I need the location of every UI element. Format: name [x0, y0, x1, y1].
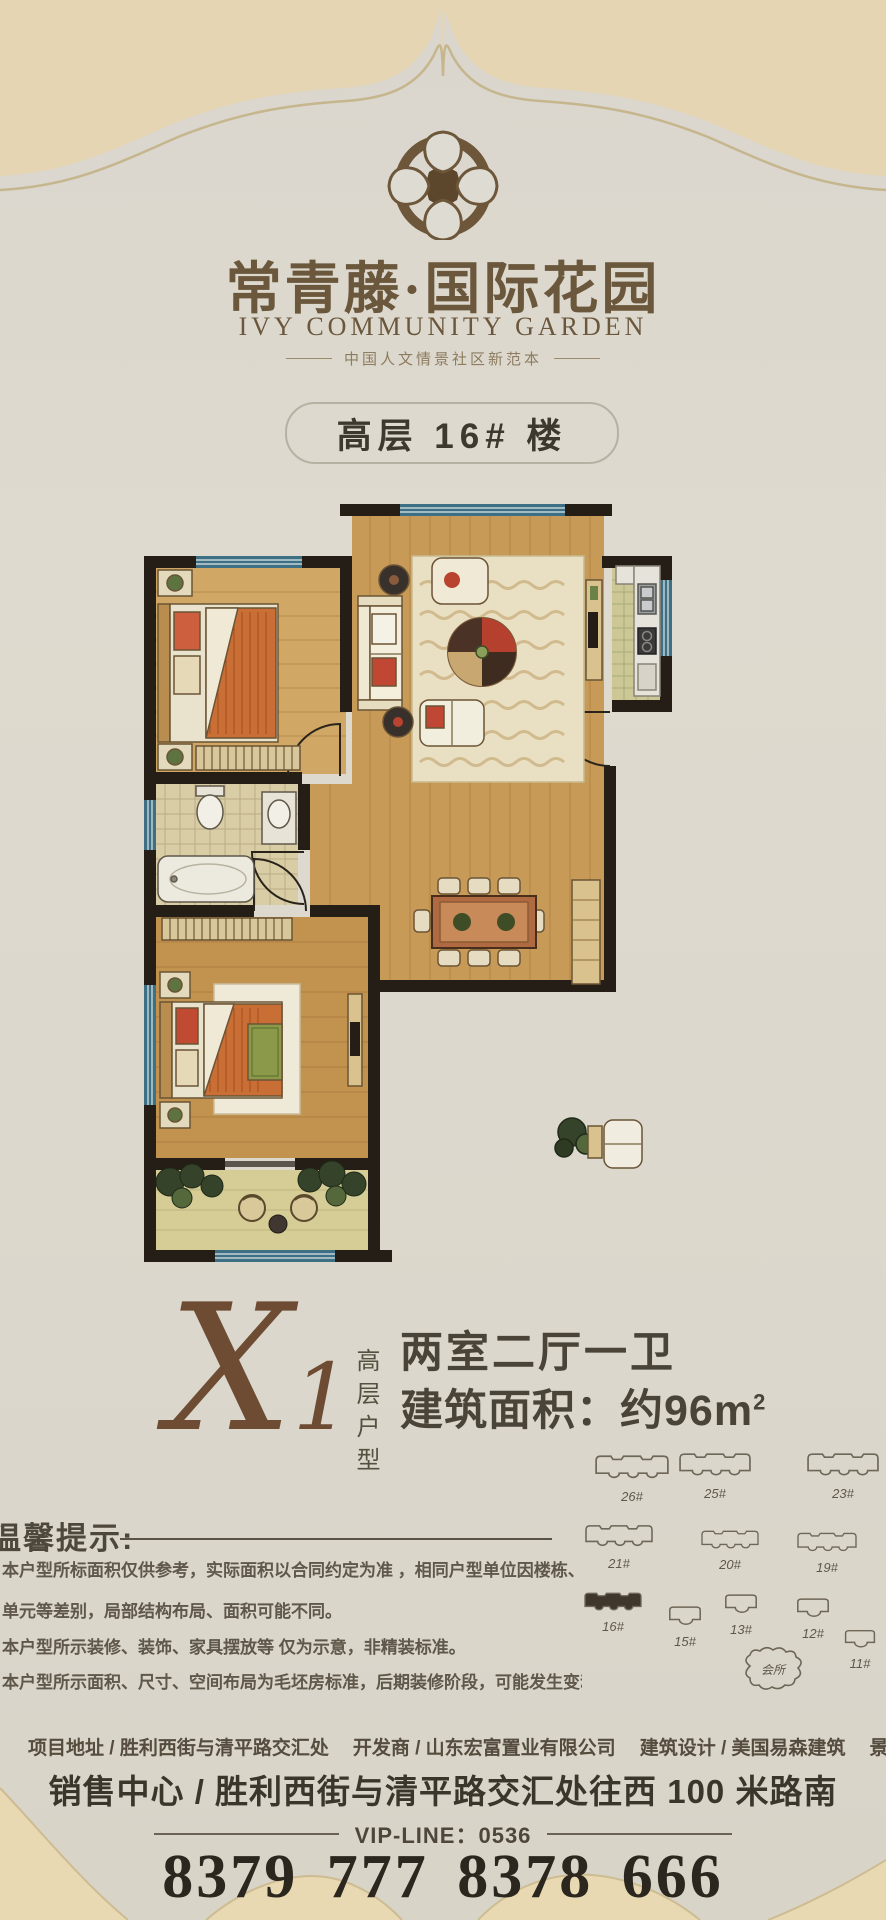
- unit-area: 建筑面积：约96m2: [400, 1376, 766, 1438]
- vip-rule-left: [154, 1833, 339, 1835]
- vip-rule-right: [547, 1833, 732, 1835]
- tips-heading: 温馨提示:: [0, 1513, 134, 1558]
- sales-center-line: 销售中心 / 胜利西街与清平路交汇处往西 100 米路南: [0, 1765, 886, 1813]
- tips-lines: 本户型所标面积仅供参考，实际面积以合同约定为准 ，相同户型单位因楼栋、楼层、单元…: [2, 1556, 582, 1693]
- developer: 开发商 / 山东宏富置业有限公司: [353, 1733, 616, 1760]
- tip-line: 单元等差别，局部结构布局、面积可能不同。: [2, 1597, 582, 1622]
- tip-line: 本户型所示装修、装饰、家具摆放等 仅为示意，非精装标准。: [2, 1633, 582, 1658]
- tip-line: 本户型所示面积、尺寸、空间布局为毛坯房标准，后期装修阶段，可能发生变动: [2, 1668, 582, 1693]
- unit-rooms: 两室二厅一卫: [400, 1318, 676, 1380]
- architecture-design: 建筑设计 / 美国易森建筑: [640, 1733, 846, 1760]
- project-address: 项目地址 / 胜利西街与清平路交汇处: [28, 1733, 329, 1760]
- unit-category: 高层户型: [348, 1348, 383, 1498]
- phone-numbers: 8379 777 8378 666: [0, 1842, 886, 1913]
- unit-code: X1: [168, 1282, 351, 1457]
- tip-line: 本户型所标面积仅供参考，实际面积以合同约定为准 ，相同户型单位因楼栋、楼层、: [2, 1556, 582, 1581]
- footer-info-row: 项目地址 / 胜利西街与清平路交汇处 开发商 / 山东宏富置业有限公司 建筑设计…: [28, 1733, 886, 1760]
- flyer-page: 常青藤·国际花园 IVY COMMUNITY GARDEN 中国人文情景社区新范…: [0, 0, 886, 1920]
- balcony-slider: [225, 1161, 295, 1167]
- landscape-design: 景观设计 / 香港阿特贝尔: [870, 1733, 886, 1760]
- entry-vignette: [555, 1118, 642, 1168]
- tips-rule: [120, 1538, 552, 1540]
